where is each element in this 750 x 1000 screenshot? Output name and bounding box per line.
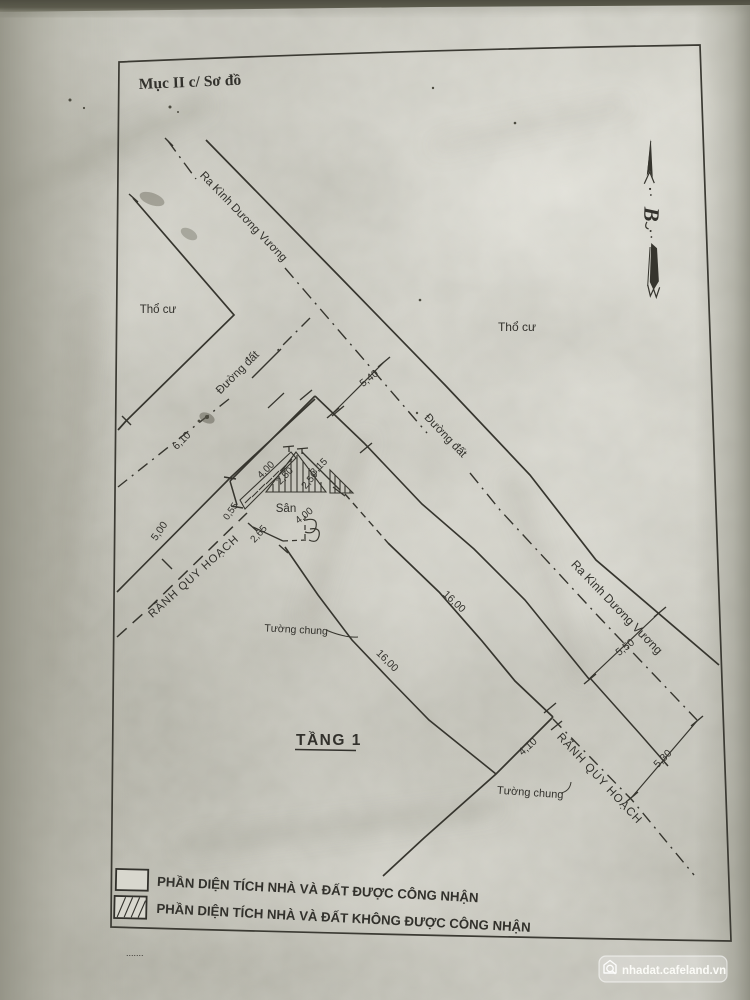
svg-text:.......: ....... bbox=[126, 948, 144, 958]
svg-text:TẦNG 1: TẦNG 1 bbox=[296, 732, 362, 749]
svg-text:Thổ cư: Thổ cư bbox=[498, 320, 536, 334]
svg-text:B: B bbox=[639, 206, 665, 223]
svg-text:Thổ cư: Thổ cư bbox=[140, 304, 177, 316]
svg-text:Sân: Sân bbox=[276, 503, 296, 515]
svg-text:nhadat.cafeland.vn: nhadat.cafeland.vn bbox=[622, 965, 726, 977]
